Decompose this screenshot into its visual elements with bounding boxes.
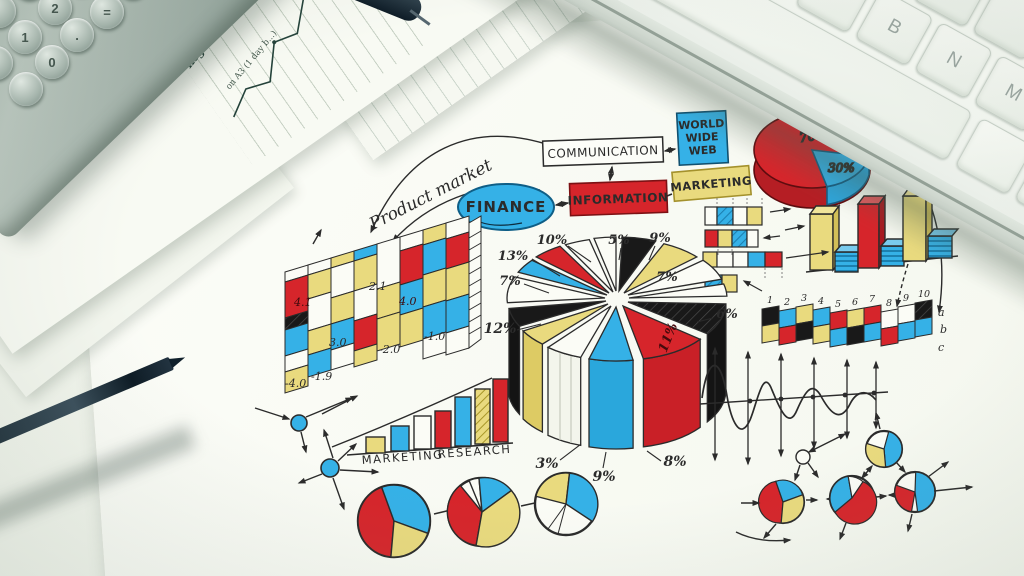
- calc-key-blank-4: [9, 72, 43, 106]
- value-n1-9: -1.9: [311, 370, 332, 383]
- mr-bar: [391, 426, 409, 451]
- value-2-1: 2.1: [368, 280, 387, 293]
- small-pie-sequence: [358, 473, 598, 557]
- mr-bar: [475, 389, 490, 444]
- mr-bar: [435, 411, 451, 448]
- label-8pct: 8%: [663, 454, 686, 470]
- marketing-research-chart: MARKETING RESEARCH: [322, 378, 513, 467]
- calc-key-dot: .: [60, 18, 94, 52]
- calc-key-0: 0: [35, 45, 69, 79]
- value-n1-0: -1.0: [424, 330, 445, 343]
- value-4-0: 4.0: [398, 295, 417, 308]
- label-9pct-bottom: 9%: [592, 469, 615, 485]
- label-12pct: 12%: [484, 321, 517, 337]
- value-n2-0: -2.0: [379, 343, 400, 356]
- mr-bar: [493, 379, 508, 442]
- desk-scene: Product market COMMUNICATION WORLD WIDE …: [0, 0, 1024, 576]
- value-n4-0: -4.0: [285, 377, 306, 390]
- mr-bar: [414, 416, 431, 449]
- value-4-1: 4.1: [293, 296, 312, 309]
- label-3pct: 3%: [535, 456, 558, 472]
- calc-key-1: 1: [8, 20, 42, 54]
- mr-bar: [455, 397, 471, 446]
- value-3-0: 3.0: [329, 336, 347, 349]
